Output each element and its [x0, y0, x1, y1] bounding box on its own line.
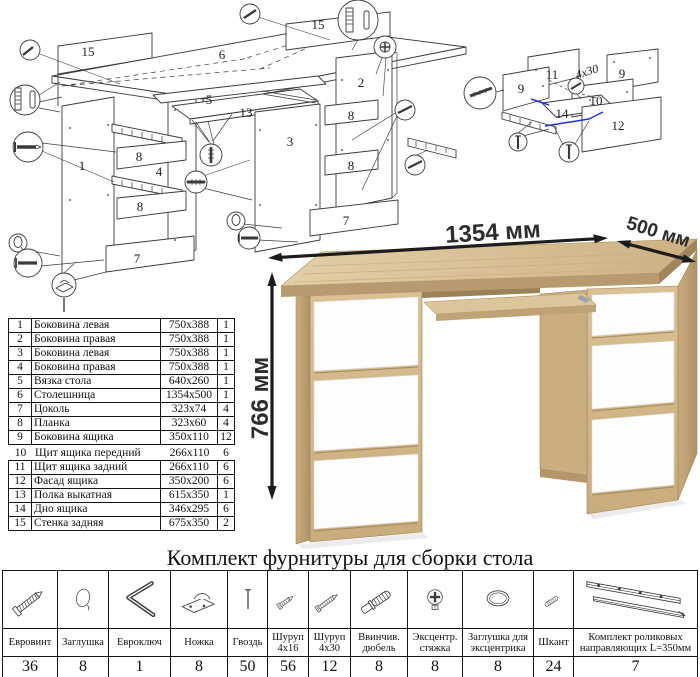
- cell-qty: 1: [218, 489, 235, 503]
- parts-table-upper: 1Боковина левая750x3881 2Боковина правая…: [8, 318, 235, 445]
- cell-size: 750x388: [161, 347, 218, 361]
- right-side-panel: [678, 250, 697, 500]
- inner-side-panel: [540, 290, 587, 475]
- cell-qty: 1: [218, 389, 235, 403]
- hardware-name: Гвоздь: [228, 629, 268, 657]
- table-row: 11Щит ящика задний266x1106: [9, 461, 235, 475]
- hardware-kit-title: Комплект фурнитуры для сборки стола: [0, 545, 700, 571]
- drawer-front: [314, 454, 418, 529]
- table-row: 15Стенка задняя675x3502: [9, 517, 235, 531]
- hardware-qty: 8: [58, 657, 109, 677]
- cell-name: Боковина ящика: [32, 431, 161, 445]
- cell-qty: 1: [218, 333, 235, 347]
- cell-size: 640x260: [161, 375, 218, 389]
- cell-num: 3: [9, 347, 32, 361]
- height-dimension-label: 766 мм: [247, 336, 275, 460]
- part-label-9: 9: [518, 81, 525, 97]
- cell-qty: 4: [218, 417, 235, 431]
- cell-size: 750x388: [161, 361, 218, 375]
- table-row: 12Фасад ящика350x2006: [9, 475, 235, 489]
- part-label-7: 7: [134, 251, 141, 267]
- cell-num: 15: [9, 517, 32, 531]
- hardware-name: Шуруп 4x30: [309, 629, 351, 657]
- table-row: 3Боковина левая750x3881: [9, 347, 235, 361]
- part-label-15: 15: [82, 44, 95, 60]
- table-row-unboxed: 10 Щит ящика передний 266x110 6: [8, 445, 234, 460]
- desk-render: [281, 239, 697, 549]
- cell-num: 14: [9, 503, 32, 517]
- hardware-name: Ввинчив. дюбель: [351, 629, 408, 657]
- hardware-qty: 8: [171, 657, 228, 677]
- drawer-front: [592, 292, 674, 336]
- hardware-name: Заглушка для эксцентрика: [463, 629, 534, 657]
- cell-name: Дно ящика: [32, 503, 161, 517]
- cell-name: Цоколь: [32, 403, 161, 417]
- cam-lock-icon: [380, 42, 390, 52]
- cell-name: Полка выкатная: [32, 489, 161, 503]
- icon-cell: [3, 571, 58, 629]
- assembly-instruction-sheet: 15 6 15 2 5 13 1 8 4 8 3 8 8 7 7 11 9 9 …: [0, 0, 700, 677]
- hardware-qty: 8: [463, 657, 534, 677]
- hex-key-icon: [113, 575, 167, 625]
- hardware-qty: 8: [408, 657, 463, 677]
- icon-cell: [109, 571, 171, 629]
- cell-size: 350x110: [161, 431, 218, 445]
- cell-size: 350x200: [161, 475, 218, 489]
- icon-cell: [408, 571, 463, 629]
- icon-cell: [574, 571, 698, 629]
- drawer-front: [314, 297, 418, 371]
- cell-num: 2: [9, 333, 32, 347]
- icon-cell: [463, 571, 534, 629]
- icon-cell: [534, 571, 574, 629]
- table-row: 7Цоколь323x744: [9, 403, 235, 417]
- cell-qty: 6: [218, 447, 234, 459]
- cell-qty: 1: [218, 375, 235, 389]
- euro-screw-icon: [6, 575, 54, 625]
- cell-name: Боковина левая: [32, 319, 161, 333]
- cam-lock-icon: [413, 575, 457, 625]
- part-label-5: 5: [206, 92, 213, 108]
- cell-num: 10: [8, 447, 33, 459]
- hardware-name: Евровинт: [3, 629, 58, 657]
- cell-size: 266x110: [161, 461, 218, 475]
- left-side-panel: [296, 296, 310, 544]
- hardware-kit: Евровинт Заглушка Евроключ Ножка Гвоздь …: [2, 570, 698, 677]
- cell-name: Щит ящика задний: [32, 461, 161, 475]
- hardware-qtys-row: 36 8 1 8 50 56 12 8 8 8 24 7: [3, 657, 698, 677]
- hardware-name: Эксцентр. стяжка: [408, 629, 463, 657]
- cell-name: Боковина правая: [32, 333, 161, 347]
- cell-name: Щит ящика передний: [33, 447, 161, 459]
- drawer-front: [314, 375, 418, 451]
- icon-cell: [309, 571, 351, 629]
- cell-size: 323x74: [161, 403, 218, 417]
- cell-num: 6: [9, 389, 32, 403]
- part-label-6: 6: [219, 47, 226, 63]
- cell-qty: 12: [218, 431, 235, 445]
- hardware-qty: 12: [309, 657, 351, 677]
- table-row: 2Боковина правая750x3881: [9, 333, 235, 347]
- part-label-2: 2: [358, 75, 365, 91]
- cell-size: 750x388: [161, 319, 218, 333]
- part-label-8: 8: [348, 108, 355, 124]
- drawer-front: [592, 413, 674, 493]
- cell-size: 346x295: [161, 503, 218, 517]
- hardware-qty: 56: [268, 657, 309, 677]
- hardware-icons-row: [3, 571, 698, 629]
- part-label-9: 9: [619, 66, 626, 82]
- hardware-name: Евроключ: [109, 629, 171, 657]
- cell-size: 1354x500: [161, 389, 218, 403]
- cell-qty: 2: [218, 517, 235, 531]
- cell-num: 7: [9, 403, 32, 417]
- hardware-name: Шуруп 4x16: [268, 629, 309, 657]
- table-row: 13Полка выкатная615x3501: [9, 489, 235, 503]
- cell-num: 5: [9, 375, 32, 389]
- table-row: 14Дно ящика346x2956: [9, 503, 235, 517]
- cell-qty: 1: [218, 319, 235, 333]
- cell-size: 323x60: [161, 417, 218, 431]
- foot-icon: [174, 575, 224, 625]
- table-row: 6Столешница1354x5001: [9, 389, 235, 403]
- hardware-table: Евровинт Заглушка Евроключ Ножка Гвоздь …: [2, 570, 698, 677]
- parts-table-lower: 11Щит ящика задний266x1106 12Фасад ящика…: [8, 460, 235, 531]
- part-label-1: 1: [79, 158, 86, 174]
- part-label-8: 8: [348, 158, 355, 174]
- cell-num: 12: [9, 475, 32, 489]
- screw-4x16-icon: [270, 575, 306, 625]
- cell-name: Планка: [32, 417, 161, 431]
- cell-size: 675x350: [161, 517, 218, 531]
- icon-cell: [351, 571, 408, 629]
- hardware-name: Ножка: [171, 629, 228, 657]
- cell-qty: 4: [218, 403, 235, 417]
- hardware-qty: 7: [574, 657, 698, 677]
- hardware-qty: 8: [351, 657, 408, 677]
- part-label-7: 7: [343, 213, 350, 229]
- table-row: 8Планка323x604: [9, 417, 235, 431]
- hardware-name: Заглушка: [58, 629, 109, 657]
- cell-num: 13: [9, 489, 32, 503]
- part-label-14: 14: [556, 106, 569, 122]
- dowel-pin-icon: [537, 575, 571, 625]
- cell-qty: 1: [218, 361, 235, 375]
- hardware-name: Комплект роликовых направляющих L=350мм: [574, 629, 698, 657]
- drawer-front: [592, 341, 674, 409]
- screw-dowel-icon: [354, 575, 404, 625]
- part-label-12: 12: [612, 118, 625, 134]
- hardware-qty: 50: [228, 657, 268, 677]
- icon-cell: [228, 571, 268, 629]
- hardware-names-row: Евровинт Заглушка Евроключ Ножка Гвоздь …: [3, 629, 698, 657]
- icon-cell: [171, 571, 228, 629]
- part-label-3: 3: [287, 134, 294, 150]
- cell-name: Стенка задняя: [32, 517, 161, 531]
- cell-qty: 6: [218, 475, 235, 489]
- plug-icon: [232, 215, 240, 226]
- part-label-8: 8: [136, 149, 143, 165]
- table-row: 5Вязка стола640x2601: [9, 375, 235, 389]
- part-label-10: 10: [590, 93, 603, 109]
- cell-name: Боковина левая: [32, 347, 161, 361]
- cell-name: Боковина правая: [32, 361, 161, 375]
- cell-name: Фасад ящика: [32, 475, 161, 489]
- cell-size: 615x350: [161, 489, 218, 503]
- cell-size: 750x388: [161, 333, 218, 347]
- plug-icon: [61, 575, 105, 625]
- hardware-name: Шкант: [534, 629, 574, 657]
- cell-qty: 6: [218, 503, 235, 517]
- cell-num: 4: [9, 361, 32, 375]
- cell-qty: 1: [218, 347, 235, 361]
- screw-4x30-icon: [311, 575, 349, 625]
- cam-cover-icon: [471, 575, 525, 625]
- part-label-13: 13: [240, 105, 253, 121]
- table-row: 1Боковина левая750x3881: [9, 319, 235, 333]
- cell-num: 9: [9, 431, 32, 445]
- hardware-qty: 1: [109, 657, 171, 677]
- cell-num: 8: [9, 417, 32, 431]
- cell-num: 1: [9, 319, 32, 333]
- part-label-15: 15: [312, 17, 325, 33]
- cell-name: Вязка стола: [32, 375, 161, 389]
- parts-list: 1Боковина левая750x3881 2Боковина правая…: [8, 318, 234, 531]
- part-label-4: 4: [156, 164, 163, 180]
- part-label-8: 8: [137, 199, 144, 215]
- drawer-slides-icon: [580, 575, 692, 625]
- table-row: 4Боковина правая750x3881: [9, 361, 235, 375]
- cell-name: Столешница: [32, 389, 161, 403]
- part-label-11: 11: [546, 67, 559, 83]
- cell-qty: 6: [218, 461, 235, 475]
- nail-icon: [231, 575, 265, 625]
- icon-cell: [268, 571, 309, 629]
- cell-size: 266x110: [161, 447, 218, 459]
- hardware-qty: 24: [534, 657, 574, 677]
- icon-cell: [58, 571, 109, 629]
- hardware-qty: 36: [3, 657, 58, 677]
- table-row: 9Боковина ящика350x11012: [9, 431, 235, 445]
- cell-num: 11: [9, 461, 32, 475]
